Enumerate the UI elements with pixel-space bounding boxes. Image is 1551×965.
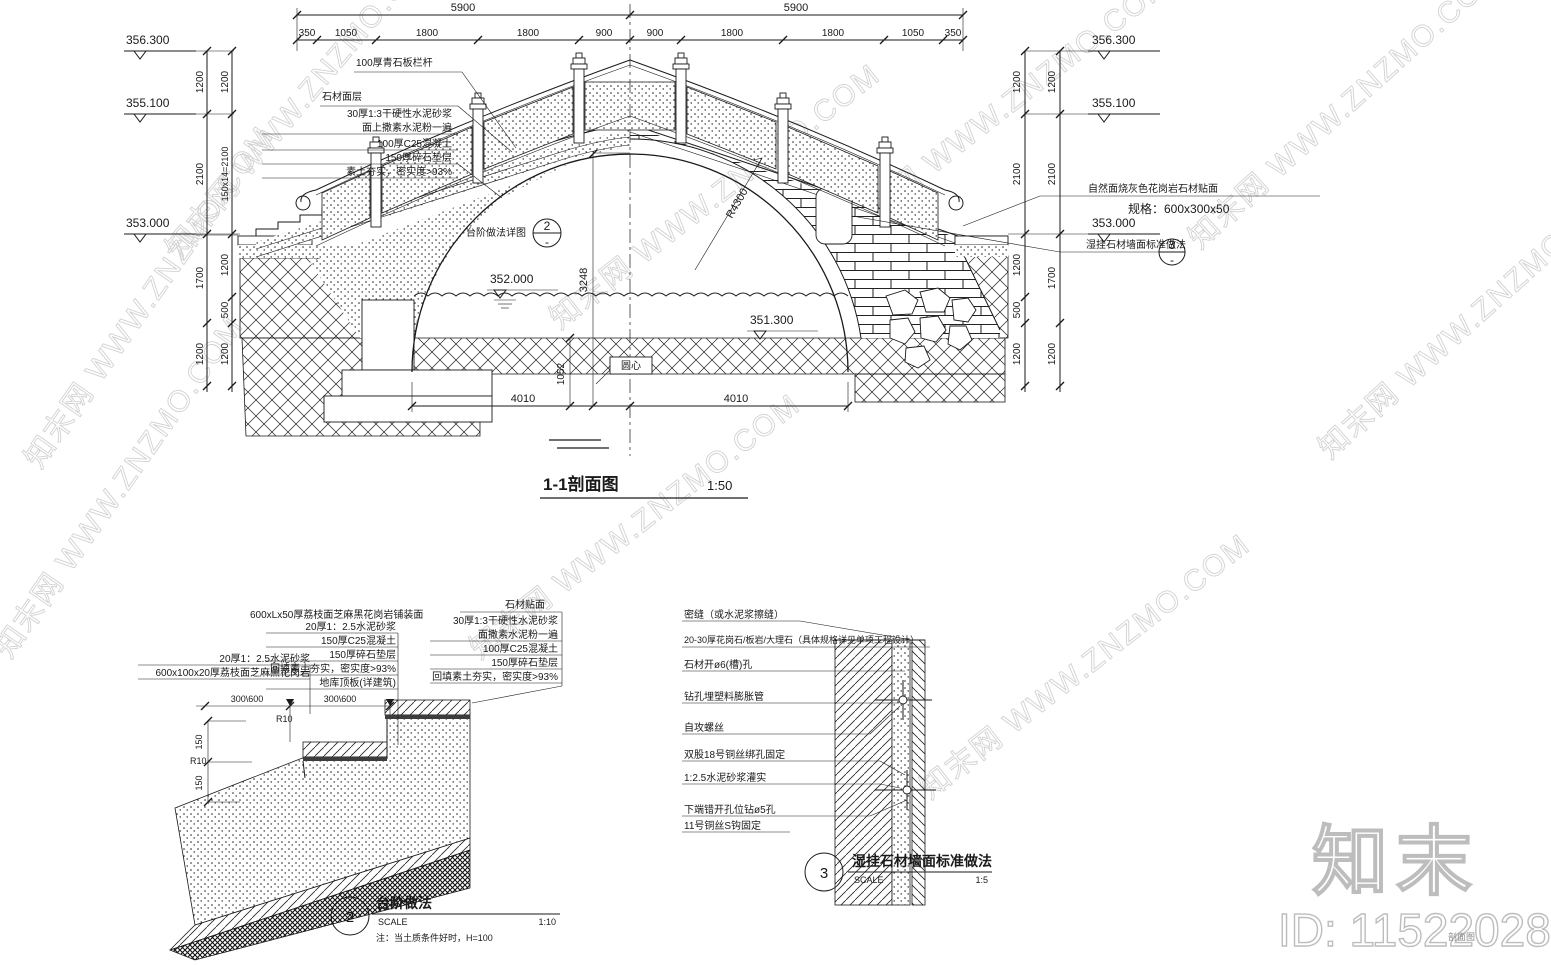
note-line: 11号铜丝S钩固定 [684, 819, 761, 832]
dim-label: 1800 [517, 28, 540, 39]
dim-label: 1200 [220, 253, 231, 276]
bed-level-label: 351.300 [750, 313, 794, 327]
level-label: 355.100 [1092, 96, 1136, 110]
site-id: ID: 1152202892 [1278, 904, 1551, 956]
drawing-title: 1-1剖面图 [543, 474, 619, 494]
dim-label: 900 [647, 28, 664, 39]
note-line: 素土夯实，密实度>93% [346, 165, 452, 178]
note-line: 面撒素水泥粉一遍 [478, 628, 558, 641]
detail-title: 湿挂石材墙面标准做法 [852, 853, 992, 869]
callout-sheet: - [1170, 253, 1174, 267]
dim-label: 500 [220, 301, 231, 318]
watermark-text: 知末网 WWW.ZNZMO.COM [1313, 167, 1551, 465]
cad-sheet: 知末网 WWW.ZNZMO.COM 知末网 WWW.ZNZMO.COM 知末网 … [0, 0, 1551, 965]
watermark-text: 知末网 WWW.ZNZMO.COM [1183, 0, 1509, 255]
dim-label: 1050 [335, 28, 358, 39]
note-line: 石材面层 [322, 90, 362, 103]
callout-label: 台阶做法详图 [466, 226, 526, 239]
dim-label: 1200 [1012, 253, 1023, 276]
note-line: 密缝（或水泥浆擦缝） [684, 608, 784, 621]
water-level-label: 352.000 [490, 272, 534, 286]
note-line: 150厚碎石垫层 [491, 656, 558, 669]
site-branding: 知末 ID: 1152202892 剖面图 [1278, 820, 1551, 956]
dim-label: 4010 [724, 393, 748, 405]
note-line: 钻孔埋塑料膨胀管 [684, 690, 764, 703]
dim-label: 1200 [220, 342, 231, 365]
dim-label: 150x14=2100 [220, 147, 230, 202]
note-line: 600xLx50厚荔枝面芝麻黑花岗岩铺装面 [250, 608, 423, 621]
dim-label: 1700 [1047, 266, 1058, 289]
note-line: 回填素土夯实，密实度>93% [432, 670, 558, 683]
note-line: 20-30厚花岗石/板岩/大理石（具体规格详见单项工程设计） [684, 634, 919, 645]
detail-number: 3 [820, 865, 828, 882]
dim-label: 2100 [1047, 162, 1058, 185]
bed-level: 351.300 [747, 313, 818, 339]
dim-label: 5900 [784, 2, 808, 14]
section-title: 1-1剖面图 1:50 [540, 474, 748, 498]
note-line: 规格：600x300x50 [1128, 201, 1230, 216]
drawing-canvas: 知末网 WWW.ZNZMO.COM 知末网 WWW.ZNZMO.COM 知末网 … [0, 0, 1551, 965]
note-line: 面上撒素水泥粉一遍 [362, 121, 452, 134]
dim-label: 350 [945, 28, 962, 39]
note-line: 回填素土夯实，密实度>93% [270, 662, 396, 675]
note-line: 双股18号铜丝绑孔固定 [684, 748, 785, 761]
corner-caption: 剖面图 [1448, 931, 1475, 942]
dim-label: 1700 [195, 266, 206, 289]
dim-label: 1200 [1012, 70, 1023, 93]
dim-label: 5900 [451, 2, 475, 14]
dim-label: 1050 [902, 28, 925, 39]
scale-value: 1:10 [538, 917, 556, 927]
scale-label: SCALE [378, 917, 408, 927]
dim-label: 150 [194, 734, 204, 749]
level-label: 353.000 [1092, 216, 1136, 230]
note-line: 100厚C25混凝土 [377, 137, 452, 150]
level-label: 356.300 [126, 33, 170, 47]
detail-steps: 300\600 300\600 R10 R10 150 150 20厚1：2.5… [138, 598, 562, 960]
scale-value: 1:5 [975, 875, 988, 885]
note-line: 30厚1:3干硬性水泥砂浆 [453, 614, 558, 627]
note-line: 石材贴面 [505, 598, 545, 611]
callout-sheet: - [545, 235, 549, 249]
callout-number: 2 [544, 219, 551, 233]
callout-step-detail: 台阶做法详图 2 - [466, 219, 561, 249]
watermark-text: 知末网 WWW.ZNZMO.COM [914, 528, 1257, 806]
note-line: 100厚C25混凝土 [483, 642, 558, 655]
center-mark: 圆心 [549, 4, 652, 456]
dim-label: 500 [1012, 301, 1023, 318]
site-logo: 知末 [1312, 820, 1480, 905]
note-line: 自攻螺丝 [684, 721, 724, 734]
dim-label: 1200 [1047, 342, 1058, 365]
dim-label: 3248 [578, 268, 590, 292]
dim-label: 1200 [195, 342, 206, 365]
note-line: 150厚C25混凝土 [321, 634, 396, 647]
level-label: 355.100 [126, 96, 170, 110]
level-label: 353.000 [126, 216, 170, 230]
dim-label: R10 [276, 714, 293, 724]
dim-label: 1200 [220, 70, 231, 93]
dim-label: 350 [299, 28, 316, 39]
note-line: 100厚青石板栏杆 [356, 56, 433, 69]
level-label: 356.300 [1092, 33, 1136, 47]
dim-label: 2100 [1012, 162, 1023, 185]
dim-label: 1052 [556, 362, 567, 385]
dim-label: 150 [194, 775, 204, 790]
callout-number: 3 [1169, 238, 1176, 252]
dim-label: 4010 [511, 393, 535, 405]
step-tread [303, 742, 387, 757]
dim-label: 1200 [1047, 70, 1058, 93]
dim-label: 900 [596, 28, 613, 39]
drawing-scale: 1:50 [707, 478, 732, 493]
note-line: 20厚1：2.5水泥砂浆 [305, 620, 396, 633]
watermark-text: 知末网 WWW.ZNZMO.COM [0, 310, 250, 664]
note-line: 30厚1:3干硬性水泥砂浆 [347, 107, 452, 120]
dim-label: R10 [190, 756, 207, 766]
note-line: 150厚碎石垫层 [385, 151, 452, 164]
detail-number: 2 [346, 909, 354, 926]
note-line: 1:2.5水泥砂浆灌实 [684, 771, 766, 784]
dim-label: 1200 [195, 70, 206, 93]
detail-note: 注：当土质条件好时，H=100 [376, 932, 493, 943]
note-line: 下端错开孔位钻ø5孔 [684, 803, 776, 816]
note-line: 150厚碎石垫层 [329, 648, 396, 661]
detail-title: 台阶做法 [376, 895, 432, 911]
note-line: 自然面烧灰色花岗岩石材贴面 [1088, 182, 1218, 195]
scale-label: SCALE [854, 875, 884, 885]
arc-center-label: 圆心 [621, 360, 641, 372]
note-line: 地库顶板(详建筑) [319, 676, 396, 689]
dim-label: 1800 [822, 28, 845, 39]
dim-label: 1800 [721, 28, 744, 39]
dim-label: 300\600 [324, 694, 357, 704]
dim-label: 1800 [416, 28, 439, 39]
dim-label: 2100 [195, 162, 206, 185]
note-line: 石材开ø6(槽)孔 [684, 658, 752, 671]
dim-label: 300\600 [231, 694, 264, 704]
dim-label: 1200 [1012, 342, 1023, 365]
